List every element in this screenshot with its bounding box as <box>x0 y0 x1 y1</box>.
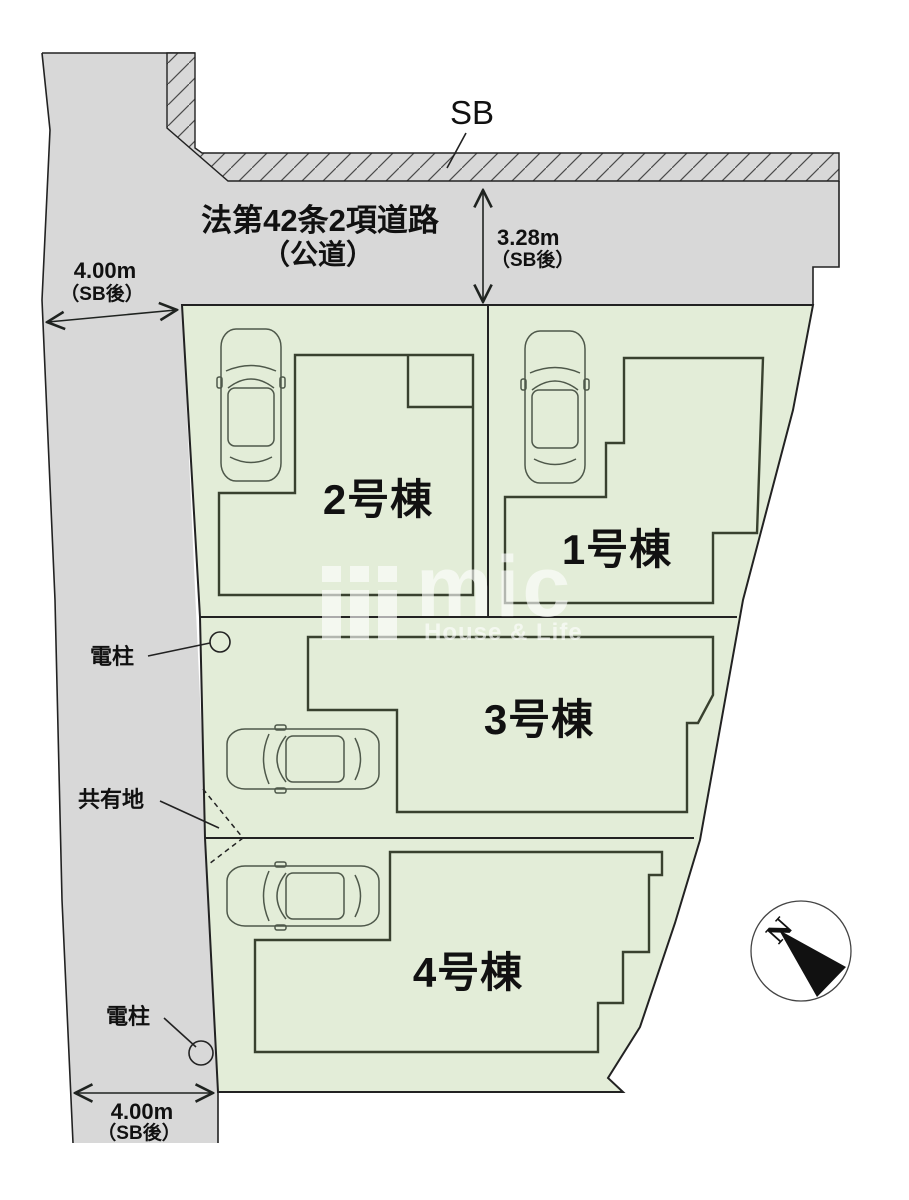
plot-label-1: 1号棟 <box>562 527 672 572</box>
utility-pole-north-label: 電柱 <box>90 645 134 669</box>
dim-west-width-value: 4.00m <box>74 259 136 283</box>
dim-north-depth-value: 3.28m <box>497 226 559 250</box>
road-name: 法第42条2項道路 <box>201 204 439 237</box>
plot-label-2: 2号棟 <box>323 477 433 522</box>
plot-label-3: 3号棟 <box>484 697 594 742</box>
setback-label: SB <box>450 95 494 131</box>
utility-pole-south-label: 電柱 <box>106 1005 150 1029</box>
setback-hatch-strip <box>167 53 839 181</box>
dim-north-depth-note: （SB後） <box>491 251 574 272</box>
dim-south-width-value: 4.00m <box>111 1100 173 1124</box>
shared-area-label: 共有地 <box>78 788 144 812</box>
road-name-type: （公道） <box>262 240 374 270</box>
site-plan-canvas: N mic House & Life SB 法第42条2項道路 （公道） 4.0… <box>0 0 909 1200</box>
compass-north-icon: N <box>751 901 851 1001</box>
dim-south-width-note: （SB後） <box>97 1124 180 1145</box>
plot-label-4: 4号棟 <box>413 950 523 995</box>
dim-west-width-note: （SB後） <box>60 285 143 306</box>
